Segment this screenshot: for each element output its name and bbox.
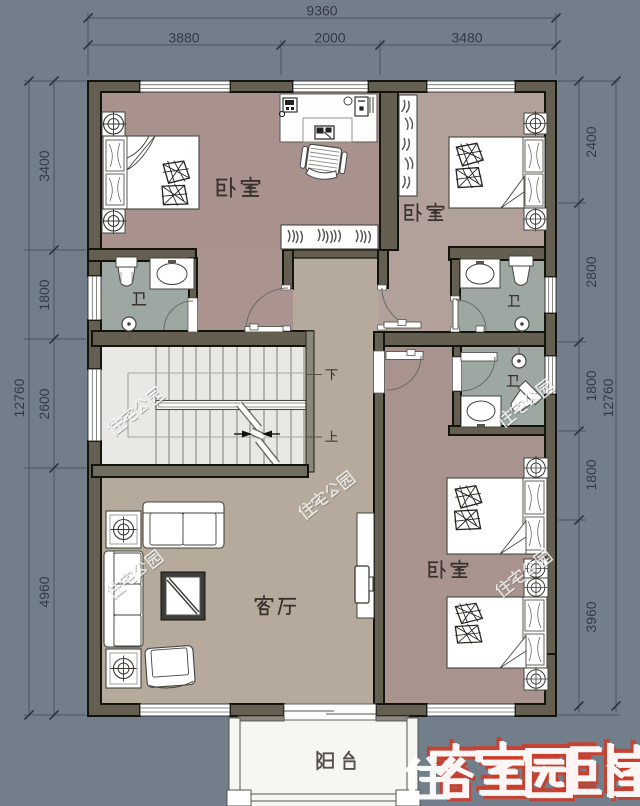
svg-text:12760: 12760 <box>11 378 27 417</box>
svg-text:1800: 1800 <box>583 370 599 401</box>
svg-text:1800: 1800 <box>36 279 52 310</box>
svg-text:2800: 2800 <box>583 256 599 287</box>
svg-text:3400: 3400 <box>36 150 52 181</box>
svg-text:2000: 2000 <box>314 30 345 46</box>
svg-text:4960: 4960 <box>36 576 52 607</box>
svg-text:2400: 2400 <box>583 126 599 157</box>
svg-text:2600: 2600 <box>36 388 52 419</box>
svg-text:3960: 3960 <box>583 601 599 632</box>
svg-text:9360: 9360 <box>306 3 337 19</box>
svg-text:3880: 3880 <box>168 30 199 46</box>
svg-text:1800: 1800 <box>583 459 599 490</box>
svg-text:12760: 12760 <box>600 378 616 417</box>
svg-text:3480: 3480 <box>451 30 482 46</box>
